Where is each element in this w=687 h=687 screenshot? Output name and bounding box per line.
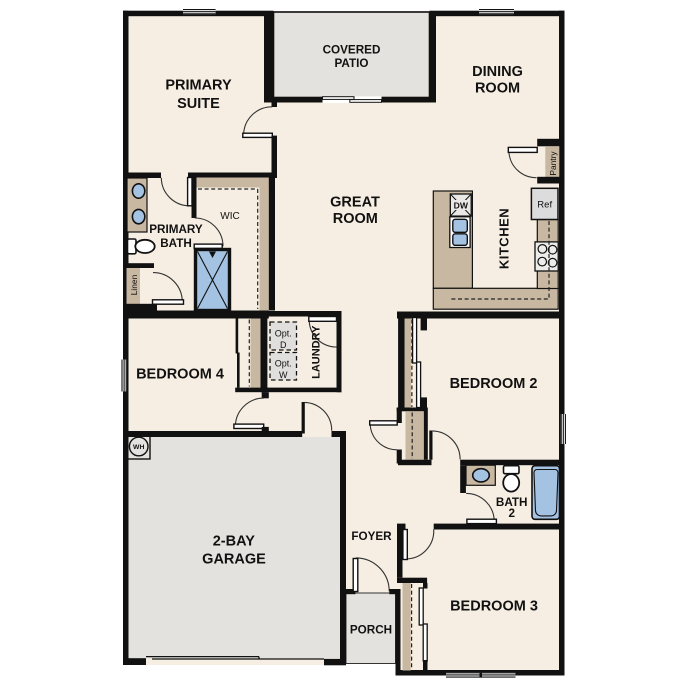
svg-text:D: D xyxy=(280,340,287,350)
svg-text:LAUNDRY: LAUNDRY xyxy=(311,325,323,379)
svg-text:ROOM: ROOM xyxy=(333,211,378,227)
svg-text:BEDROOM 4: BEDROOM 4 xyxy=(136,367,224,383)
svg-text:PATIO: PATIO xyxy=(335,57,369,70)
svg-text:BEDROOM 2: BEDROOM 2 xyxy=(450,376,538,392)
svg-text:SUITE: SUITE xyxy=(177,96,220,112)
svg-text:COVERED: COVERED xyxy=(323,44,381,57)
svg-text:WIC: WIC xyxy=(220,211,239,222)
svg-text:Opt.: Opt. xyxy=(275,329,292,339)
svg-text:Pantry: Pantry xyxy=(548,151,558,176)
svg-text:ROOM: ROOM xyxy=(475,80,520,96)
svg-text:Linen: Linen xyxy=(129,274,139,295)
svg-text:Opt.: Opt. xyxy=(275,359,292,369)
svg-text:BEDROOM 3: BEDROOM 3 xyxy=(450,599,538,615)
svg-text:DINING: DINING xyxy=(472,64,523,80)
svg-text:BATH: BATH xyxy=(160,237,192,250)
svg-text:KITCHEN: KITCHEN xyxy=(497,208,512,269)
svg-text:FOYER: FOYER xyxy=(351,530,392,543)
svg-text:WH: WH xyxy=(133,444,144,451)
svg-text:PRIMARY: PRIMARY xyxy=(165,78,232,94)
svg-text:GREAT: GREAT xyxy=(330,195,380,211)
svg-text:PORCH: PORCH xyxy=(350,624,392,637)
svg-text:W: W xyxy=(279,370,288,380)
svg-text:2-BAY: 2-BAY xyxy=(213,534,256,550)
svg-text:Ref: Ref xyxy=(537,199,552,210)
svg-text:GARAGE: GARAGE xyxy=(202,552,266,568)
svg-text:PRIMARY: PRIMARY xyxy=(149,223,203,236)
svg-text:2: 2 xyxy=(508,507,515,520)
svg-text:DW: DW xyxy=(454,200,469,210)
